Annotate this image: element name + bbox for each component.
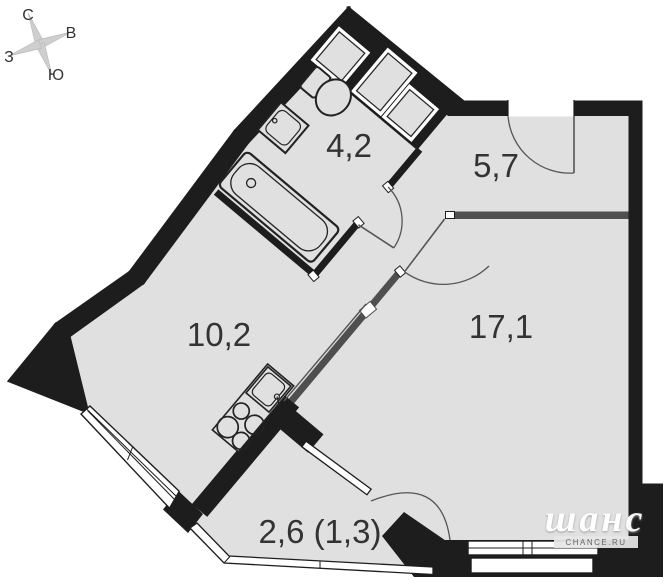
svg-text:2,6 (1,3): 2,6 (1,3) [259, 513, 382, 550]
svg-text:Ю: Ю [48, 67, 64, 84]
svg-text:С: С [22, 7, 34, 24]
svg-text:5,7: 5,7 [473, 147, 519, 184]
svg-text:З: З [4, 49, 14, 66]
svg-text:В: В [66, 25, 77, 42]
svg-text:шанс: шанс [545, 498, 646, 540]
svg-text:4,2: 4,2 [326, 127, 372, 164]
svg-text:17,1: 17,1 [469, 308, 533, 345]
svg-text:10,2: 10,2 [187, 316, 251, 353]
svg-text:CHANCE.RU: CHANCE.RU [565, 538, 626, 547]
